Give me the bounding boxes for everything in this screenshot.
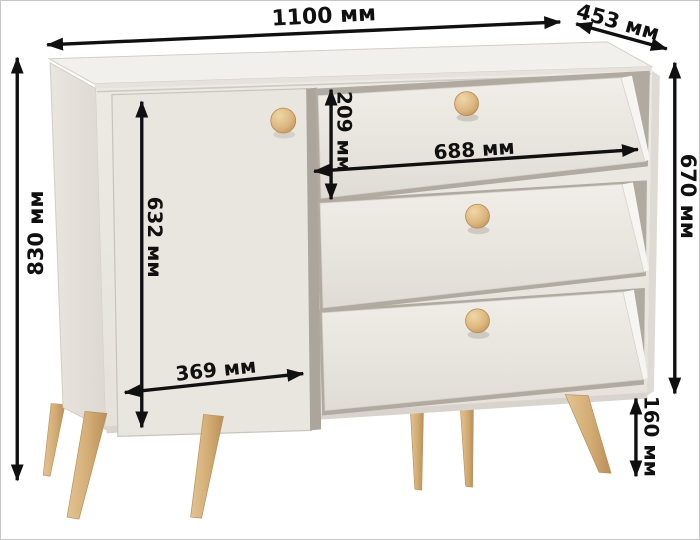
- drawer-3-knob: [466, 309, 490, 333]
- dim-leg-height: 160 мм: [636, 396, 662, 477]
- dim-body-height-label: 670 мм: [676, 154, 699, 239]
- dim-overall-height: 830 мм: [17, 58, 48, 480]
- dim-body-height: 670 мм: [675, 63, 699, 394]
- dim-depth-label: 453 мм: [574, 1, 662, 45]
- dim-overall-width-label: 1100 мм: [271, 1, 377, 31]
- leg-back-left: [43, 404, 65, 477]
- dim-leg-height-label: 160 мм: [639, 396, 662, 477]
- leg-back-middle: [410, 401, 424, 491]
- leg-front-right: [565, 395, 611, 474]
- drawer-1-knob: [455, 92, 479, 116]
- dim-overall-width: 1100 мм: [47, 1, 560, 45]
- dresser-diagram-canvas: 1100 мм 453 мм 830 мм 670 мм 209 мм 688 …: [1, 1, 699, 539]
- leg-front-left: [67, 411, 107, 519]
- dim-depth: 453 мм: [574, 1, 667, 49]
- drawer-2-knob: [466, 204, 490, 228]
- leg-back-right: [460, 398, 474, 488]
- dim-door-height-label: 632 мм: [143, 197, 166, 278]
- product-dimension-diagram: 1100 мм 453 мм 830 мм 670 мм 209 мм 688 …: [0, 0, 700, 540]
- dim-overall-height-label: 830 мм: [24, 191, 48, 276]
- door-knob: [271, 108, 296, 133]
- dim-top-drawer-height-label: 209 мм: [333, 91, 356, 172]
